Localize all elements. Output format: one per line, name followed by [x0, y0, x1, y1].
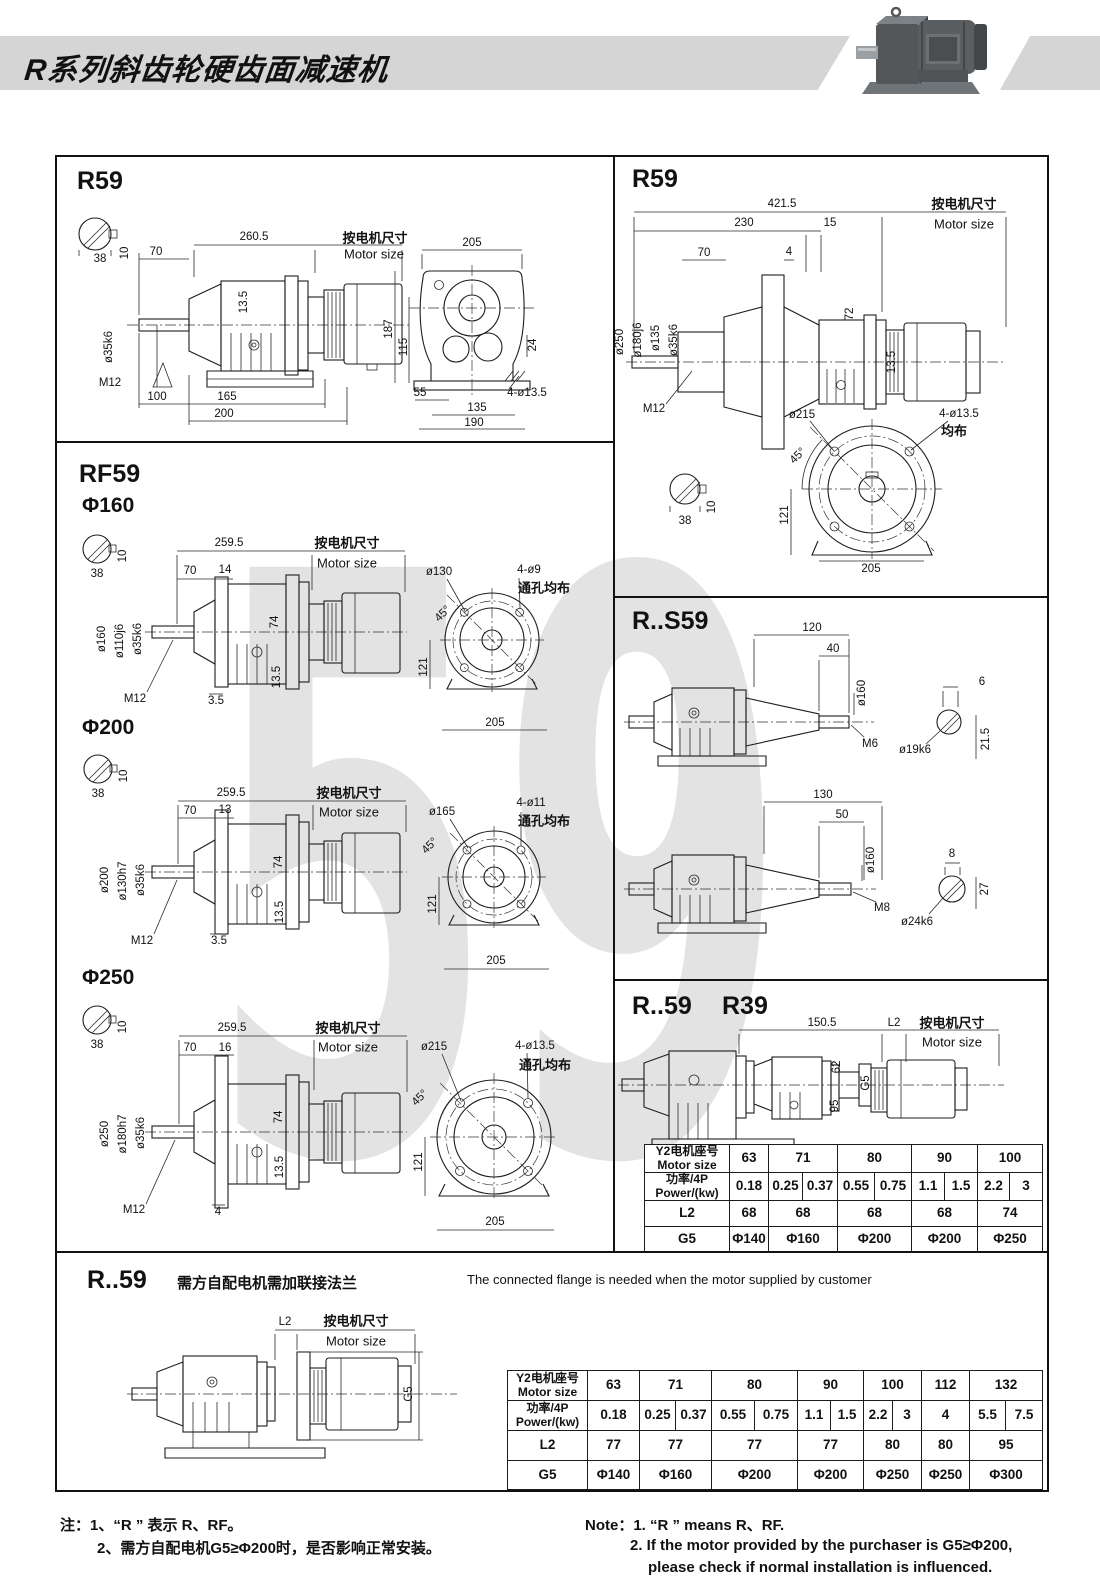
- panel4-title: R..S59: [632, 607, 708, 636]
- g5-value: Φ160: [769, 1227, 838, 1253]
- dim-74: 74: [269, 616, 281, 629]
- dim-38: 38: [91, 568, 104, 580]
- power: 1.1: [912, 1173, 945, 1201]
- dim-key6: 6: [979, 676, 985, 688]
- dim-27: 27: [979, 883, 991, 896]
- l2-value: 80: [864, 1431, 922, 1461]
- dim-fthru: 通孔均布: [518, 578, 570, 597]
- dim-m12: M12: [131, 935, 153, 947]
- power: 0.18: [730, 1173, 769, 1201]
- dim-13-5: 13.5: [274, 1156, 286, 1178]
- dim-l2: L2: [888, 1017, 901, 1029]
- dim-120: 120: [802, 622, 821, 634]
- dim-diaA: ø250: [99, 1121, 111, 1147]
- l2-value: 77: [712, 1431, 798, 1461]
- dim-fdia: ø165: [429, 806, 455, 818]
- th-l2: L2: [645, 1201, 730, 1227]
- dim-f215: ø215: [789, 409, 815, 421]
- g5-value: Φ250: [864, 1461, 922, 1490]
- dim-121: 121: [779, 505, 791, 524]
- dim-g5: G5: [860, 1075, 872, 1090]
- dim-13-5: 13.5: [274, 901, 286, 923]
- l2-value: 74: [978, 1201, 1043, 1227]
- l2-value: 77: [798, 1431, 864, 1461]
- dim-l2: L2: [279, 1316, 292, 1328]
- dim-74: 74: [273, 856, 285, 869]
- dim-fthru: 通孔均布: [519, 1055, 571, 1074]
- panel2-title: R59: [632, 165, 678, 194]
- note-cn-2: 2、需方自配电机G5≥Φ200时，是否影响正常安装。: [97, 1537, 441, 1558]
- l2-value: 68: [838, 1201, 912, 1227]
- size-90: 90: [798, 1371, 864, 1401]
- dim-total: 259.5: [217, 787, 246, 799]
- catalog-page: R系列斜齿轮硬齿面减速机 59: [0, 0, 1100, 1583]
- dim-motor-en: Motor size: [326, 1334, 386, 1349]
- g5-value: Φ140: [588, 1461, 640, 1490]
- dim-m12: M12: [643, 403, 665, 415]
- power: 0.55: [838, 1173, 875, 1201]
- dim-rear-55: 55: [414, 387, 427, 399]
- dim-motor-cn: 按电机尺寸: [919, 1013, 984, 1032]
- dim-key8: 8: [949, 848, 955, 860]
- divider-h2: [614, 596, 1047, 598]
- r59-foot-drawing: [57, 157, 614, 442]
- dim-motor-cn: 按电机尺寸: [314, 533, 379, 552]
- power: 1.5: [945, 1173, 978, 1201]
- dim-diaA: ø160: [96, 626, 108, 652]
- dim-m8: M8: [874, 902, 890, 914]
- panel5-title-2: R39: [722, 992, 768, 1021]
- dim-motor-en: Motor size: [934, 217, 994, 232]
- dim-205: 205: [485, 1216, 504, 1228]
- dim-121: 121: [427, 894, 439, 913]
- dim-10: 10: [118, 770, 130, 783]
- dim-motor-cn: 按电机尺寸: [316, 783, 381, 802]
- dim-dia135: ø135: [650, 325, 662, 351]
- size-90: 90: [912, 1145, 978, 1173]
- dim-diaA: ø200: [99, 867, 111, 893]
- size-100: 100: [864, 1371, 922, 1401]
- dim-95: 95: [829, 1100, 841, 1113]
- dim-fholes: 4-ø13.5: [515, 1040, 555, 1052]
- dim-dia160: ø160: [865, 847, 877, 873]
- dim-motor-en: Motor size: [318, 1040, 378, 1055]
- th-power: 功率/4PPower/(kw): [508, 1401, 588, 1431]
- dim-key-height: 10: [119, 247, 131, 260]
- dim-165: 165: [217, 391, 236, 403]
- dim-121: 121: [418, 657, 430, 676]
- dim-10: 10: [117, 1021, 129, 1034]
- dim-15: 15: [824, 217, 837, 229]
- power: 0.75: [755, 1401, 798, 1431]
- dim-13-5: 13.5: [238, 291, 250, 313]
- dim-70: 70: [184, 565, 197, 577]
- dim-m12: M12: [123, 1204, 145, 1216]
- dim-gap: 16: [219, 1042, 232, 1054]
- dim-total: 259.5: [218, 1022, 247, 1034]
- dim-gap: 14: [219, 564, 232, 576]
- size-63: 63: [588, 1371, 640, 1401]
- dim-off: 3.5: [208, 695, 224, 707]
- dim-fholes: 4-ø11: [516, 797, 545, 809]
- dim-total-length: 260.5: [240, 231, 269, 243]
- head-200: Φ200: [82, 716, 134, 740]
- dim-70: 70: [184, 1042, 197, 1054]
- dim-motor-size-en: Motor size: [344, 247, 404, 262]
- power: 3: [1010, 1173, 1043, 1201]
- dim-diaB: ø110j6: [114, 624, 126, 658]
- panel6-note-en: The connected flange is needed when the …: [467, 1272, 872, 1287]
- dim-fholes: 4-ø13.5: [939, 408, 979, 420]
- dim-shaft-k: 10: [706, 501, 718, 514]
- dim-off: 4: [215, 1206, 221, 1218]
- panel6-subtitle-cn: 需方自配电机需加联接法兰: [177, 1272, 357, 1293]
- panel5-title-1: R..59: [632, 992, 692, 1021]
- g5-value: Φ140: [730, 1227, 769, 1253]
- dim-motor-cn: 按电机尺寸: [323, 1311, 388, 1330]
- power: 2.2: [978, 1173, 1010, 1201]
- panel-r59-r39: R..59 R39 150.5 L2 按电机尺寸 Motor size 62 9…: [614, 980, 1047, 1252]
- head-250: Φ250: [82, 966, 134, 990]
- l2-value: 80: [922, 1431, 970, 1461]
- power: 0.55: [712, 1401, 755, 1431]
- dim-gap: 13: [219, 804, 232, 816]
- note-en-1: Note：1. “R ” means R、RF.: [585, 1514, 784, 1535]
- power: 1.5: [831, 1401, 864, 1431]
- dim-72: 72: [844, 308, 856, 321]
- dim-motor-en: Motor size: [922, 1035, 982, 1050]
- dim-13-5: 13.5: [271, 666, 283, 688]
- dim-50: 50: [836, 809, 849, 821]
- dim-10: 10: [117, 550, 129, 563]
- dim-motor-cn: 按电机尺寸: [931, 194, 996, 213]
- power: 3: [893, 1401, 922, 1431]
- g5-value: Φ250: [922, 1461, 970, 1490]
- panel3-title: RF59: [79, 460, 140, 489]
- power: 4: [922, 1401, 970, 1431]
- size-80: 80: [712, 1371, 798, 1401]
- size-63: 63: [730, 1145, 769, 1173]
- panel-r59-foot: R59 38 10 260.5 按电机尺寸 Motor size 70 13.5…: [57, 157, 614, 442]
- size-71: 71: [769, 1145, 838, 1173]
- power: 5.5: [970, 1401, 1006, 1431]
- dim-diaC: ø35k6: [135, 1117, 147, 1149]
- dim-70: 70: [150, 246, 163, 258]
- size-71: 71: [640, 1371, 712, 1401]
- th-g5: G5: [508, 1461, 588, 1490]
- g5-value: Φ300: [970, 1461, 1043, 1490]
- dim-dia19: ø19k6: [899, 744, 931, 756]
- dim-205: 205: [861, 563, 880, 575]
- dim-rear-holes: 4-ø13.5: [507, 387, 547, 399]
- dim-38: 38: [91, 1039, 104, 1051]
- dim-total: 421.5: [768, 198, 797, 210]
- dim-feven: 均布: [941, 421, 967, 440]
- g5-value: Φ200: [798, 1461, 864, 1490]
- note-en-2: 2. If the motor provided by the purchase…: [630, 1537, 1012, 1554]
- size-100: 100: [978, 1145, 1043, 1173]
- dim-rear-24: 24: [527, 339, 539, 352]
- dim-38: 38: [92, 788, 105, 800]
- drawing-sheet: R59 38 10 260.5 按电机尺寸 Motor size 70 13.5…: [55, 155, 1049, 1492]
- note-en-3: please check if normal installation is i…: [648, 1559, 992, 1576]
- dim-200: 200: [214, 408, 233, 420]
- dim-rear-190: 190: [464, 417, 483, 429]
- panel-rf59: RF59 Φ160 Φ200 Φ250 38 10 259.5 按电机尺寸 Mo…: [57, 442, 614, 1252]
- dim-g5: G5: [403, 1386, 415, 1401]
- dim-diaC: ø35k6: [135, 864, 147, 896]
- dim-m6: M6: [862, 738, 878, 750]
- dim-motor-en: Motor size: [319, 805, 379, 820]
- dim-fholes: 4-ø9: [517, 564, 541, 576]
- dim-dia160: ø160: [856, 680, 868, 706]
- divider-h1: [57, 441, 614, 443]
- dim-m12: M12: [124, 693, 146, 705]
- dim-total: 259.5: [215, 537, 244, 549]
- product-photo: [852, 4, 1002, 99]
- dim-230: 230: [734, 217, 753, 229]
- dim-100: 100: [147, 391, 166, 403]
- dim-dia180: ø180j6: [632, 322, 644, 357]
- page-title: R系列斜齿轮硬齿面减速机: [23, 45, 391, 89]
- size-112: 112: [922, 1371, 970, 1401]
- dim-rear-205: 205: [462, 237, 481, 249]
- dim-70: 70: [184, 805, 197, 817]
- dim-62: 62: [831, 1061, 843, 1074]
- dim-70: 70: [698, 247, 711, 259]
- dim-74: 74: [273, 1111, 285, 1124]
- dim-off: 3.5: [211, 935, 227, 947]
- g5-value: Φ250: [978, 1227, 1043, 1253]
- power: 0.75: [875, 1173, 912, 1201]
- dim-fthru: 通孔均布: [518, 811, 570, 830]
- l2-value: 68: [769, 1201, 838, 1227]
- dim-13-5: 13.5: [886, 351, 898, 373]
- divider-h3: [614, 979, 1047, 981]
- th-l2: L2: [508, 1431, 588, 1461]
- dim-dia24: ø24k6: [901, 916, 933, 928]
- dim-205: 205: [486, 955, 505, 967]
- panel1-title: R59: [77, 167, 123, 196]
- dim-rear-135: 135: [467, 402, 486, 414]
- divider-h4: [57, 1251, 1047, 1253]
- dim-rear-115: 115: [398, 338, 410, 356]
- panel-r59-flange: R59 421.5 按电机尺寸 Motor size 230 15 70 4 ø…: [614, 157, 1047, 597]
- dim-motor-cn: 按电机尺寸: [315, 1018, 380, 1037]
- dim-m12: M12: [99, 377, 121, 389]
- panel6-title: R..59: [87, 1266, 147, 1295]
- dim-fdia: ø215: [421, 1041, 447, 1053]
- power: 0.37: [803, 1173, 838, 1201]
- dim-diaC: ø35k6: [132, 623, 144, 655]
- dim-4: 4: [786, 246, 792, 258]
- th-power: 功率/4PPower/(kw): [645, 1173, 730, 1201]
- head-160: Φ160: [82, 494, 134, 518]
- size-132: 132: [970, 1371, 1043, 1401]
- header-stripe: [1000, 36, 1100, 90]
- header-band: R系列斜齿轮硬齿面减速机: [0, 36, 850, 90]
- dim-shaft-width: 38: [94, 253, 107, 265]
- power: 2.2: [864, 1401, 893, 1431]
- l2-value: 95: [970, 1431, 1043, 1461]
- dim-121: 121: [413, 1152, 425, 1171]
- dim-205: 205: [485, 717, 504, 729]
- l2-value: 77: [640, 1431, 712, 1461]
- power: 0.18: [588, 1401, 640, 1431]
- l2-value: 77: [588, 1431, 640, 1461]
- g5-value: Φ160: [640, 1461, 712, 1490]
- th-g5: G5: [645, 1227, 730, 1253]
- g5-value: Φ200: [912, 1227, 978, 1253]
- dim-motor-en: Motor size: [317, 556, 377, 571]
- dim-dia35: ø35k6: [668, 324, 680, 356]
- dim-rear-187: 187: [383, 319, 395, 338]
- panel-rs59: R..S59 120 40 ø160 M6 6 ø19k6 21.5 130 5…: [614, 597, 1047, 980]
- size-80: 80: [838, 1145, 912, 1173]
- dim-130: 130: [813, 789, 832, 801]
- dim-150-5: 150.5: [808, 1017, 837, 1029]
- note-cn-1: 注：1、“R ” 表示 R、RF。: [60, 1514, 243, 1535]
- dim-40: 40: [827, 643, 840, 655]
- spec-table-r59-r39: Y2电机座号Motor size 63 71 80 90 100 功率/4PPo…: [644, 1144, 1043, 1253]
- th-motor-size: Y2电机座号Motor size: [645, 1145, 730, 1173]
- spec-table-r59: Y2电机座号Motor size 63 71 80 90 100 112 132…: [507, 1370, 1043, 1490]
- dim-diaB: ø130h7: [117, 861, 129, 900]
- power: 1.1: [798, 1401, 831, 1431]
- l2-value: 68: [730, 1201, 769, 1227]
- dim-dia250: ø250: [614, 329, 626, 355]
- g5-value: Φ200: [712, 1461, 798, 1490]
- dim-diaB: ø180h7: [117, 1114, 129, 1153]
- g5-value: Φ200: [838, 1227, 912, 1253]
- power: 0.25: [640, 1401, 676, 1431]
- divider-vertical: [613, 157, 615, 1252]
- power: 0.37: [676, 1401, 712, 1431]
- th-motor-size: Y2电机座号Motor size: [508, 1371, 588, 1401]
- dim-shaft-w: 38: [679, 515, 692, 527]
- dim-shaft-dia: ø35k6: [103, 331, 115, 363]
- power: 0.25: [769, 1173, 803, 1201]
- power: 7.5: [1006, 1401, 1043, 1431]
- dim-fdia: ø130: [426, 566, 452, 578]
- dim-motor-size-cn: 按电机尺寸: [342, 228, 407, 247]
- dim-21-5: 21.5: [980, 728, 992, 750]
- l2-value: 68: [912, 1201, 978, 1227]
- panel-r59-customer-motor: R..59 需方自配电机需加联接法兰 The connected flange …: [57, 1252, 1047, 1490]
